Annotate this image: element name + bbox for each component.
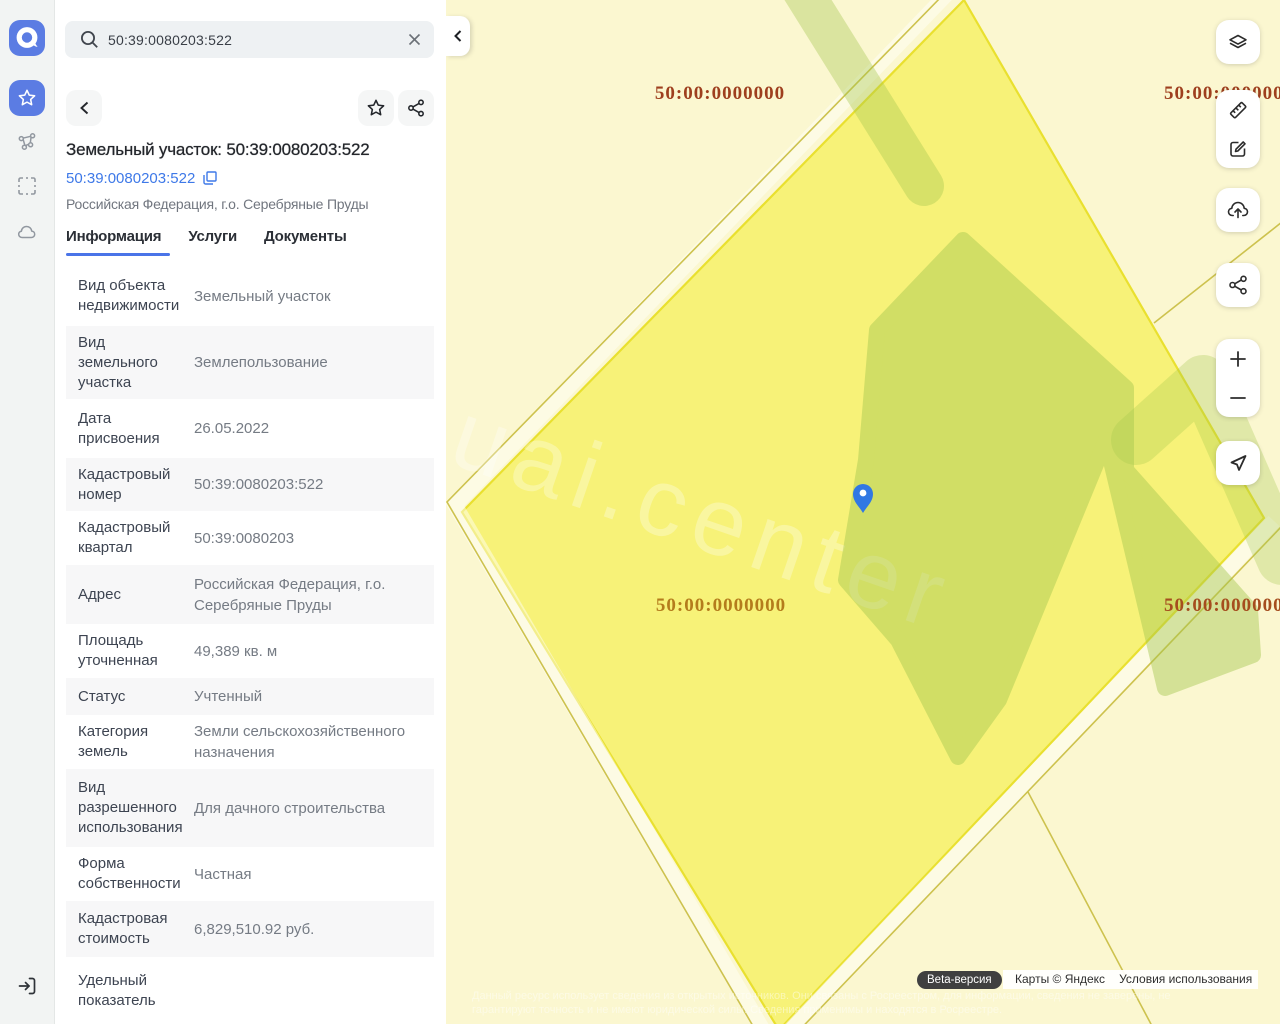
- svg-text:50:00:0000000: 50:00:0000000: [1164, 595, 1280, 616]
- svg-text:50:00:0000000: 50:00:0000000: [655, 83, 785, 104]
- svg-text:50:00:0000000: 50:00:0000000: [656, 595, 786, 616]
